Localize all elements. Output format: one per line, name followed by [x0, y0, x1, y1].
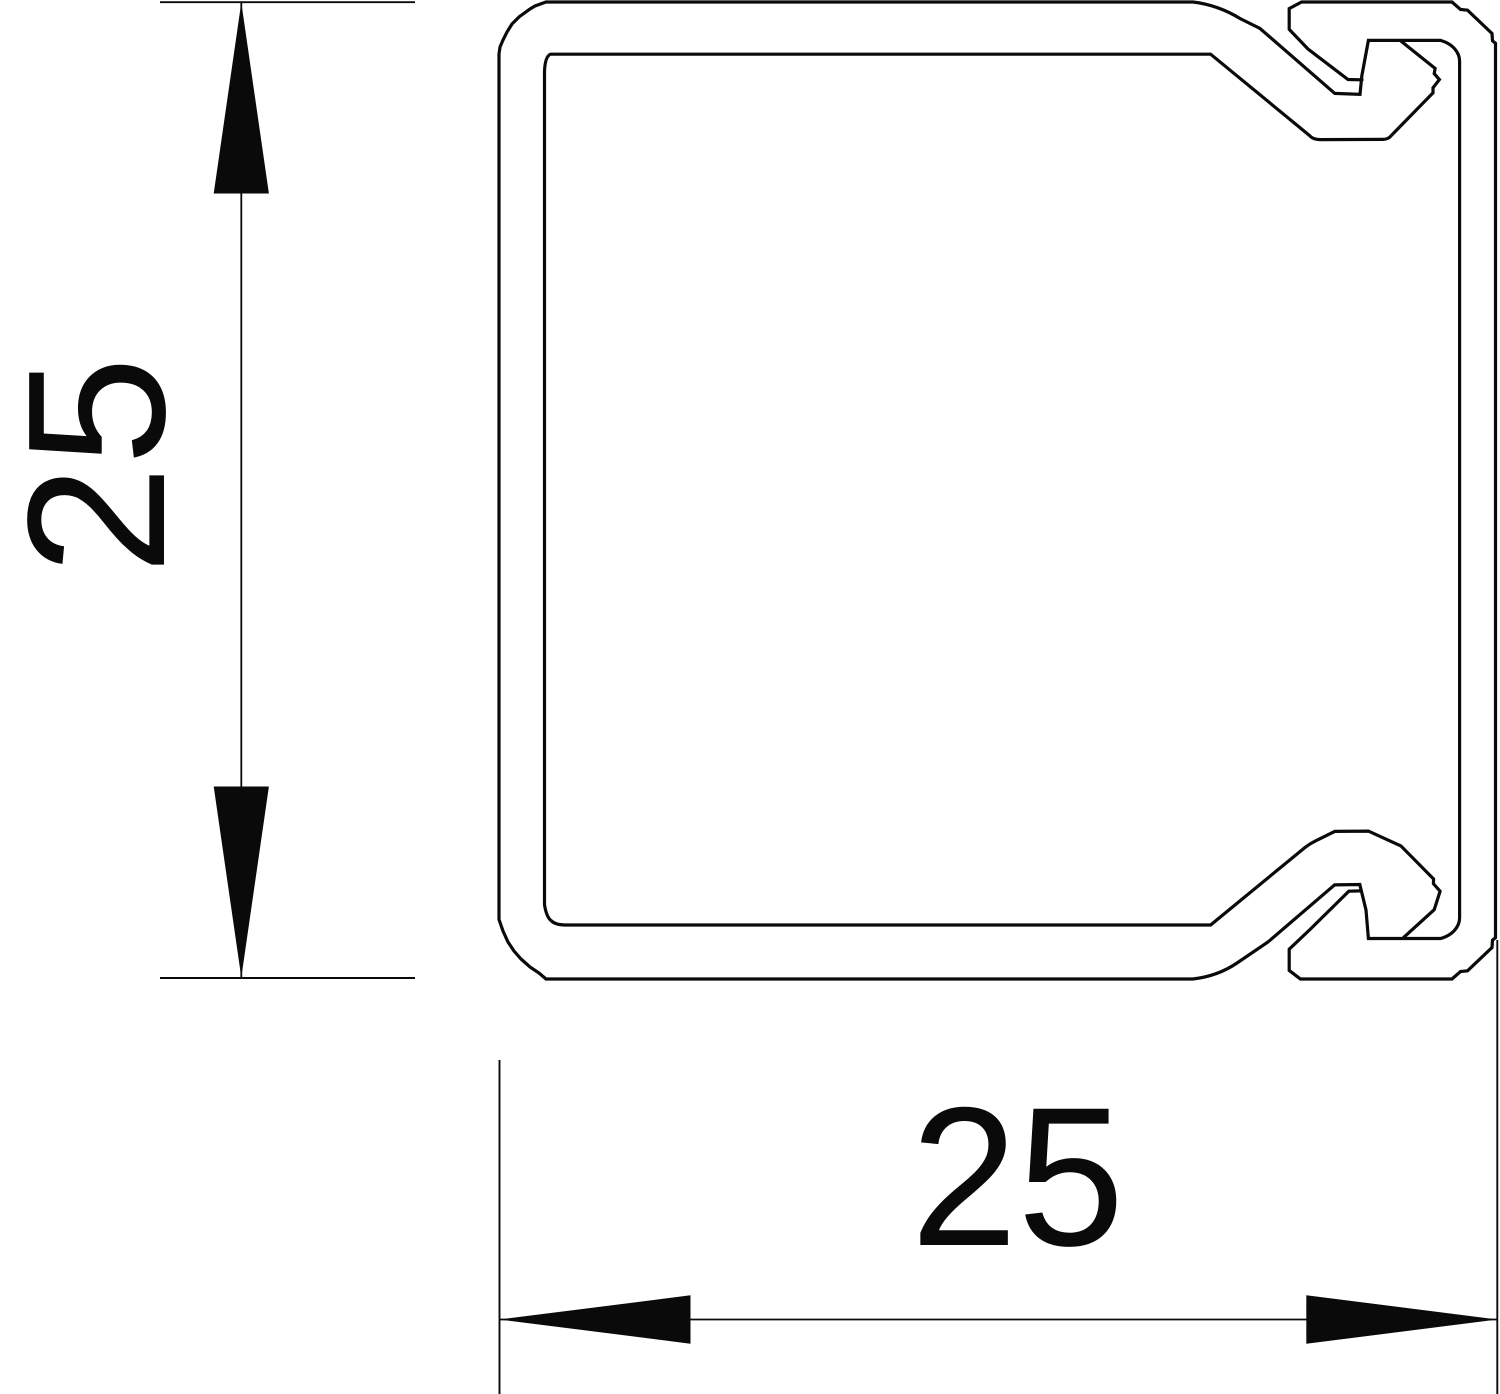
- svg-text:25: 25: [0, 356, 206, 574]
- svg-text:25: 25: [911, 1066, 1125, 1287]
